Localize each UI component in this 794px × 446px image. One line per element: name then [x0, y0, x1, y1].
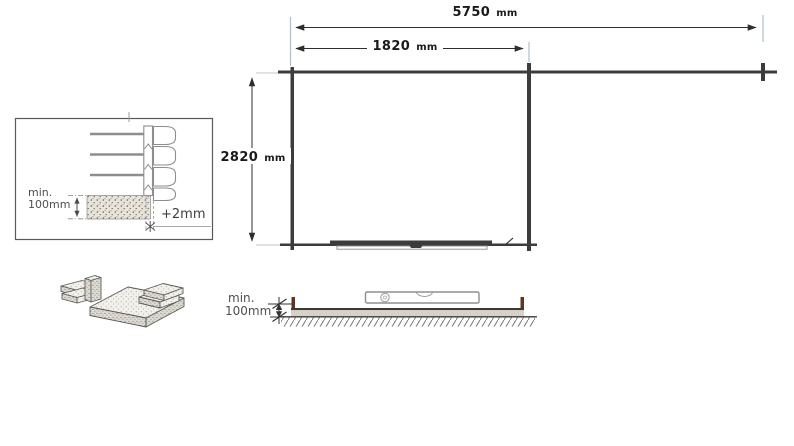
dimension-value: 5750 — [452, 5, 490, 20]
min-label-line2: 100mm — [225, 305, 271, 318]
min-label-line1: min. — [225, 292, 271, 305]
support-peg-left — [292, 297, 296, 309]
right-end-post — [761, 63, 765, 81]
diagram-linework — [0, 0, 794, 446]
dimension-unit: mm — [416, 42, 437, 53]
foundation-beam-section — [87, 196, 151, 220]
slab-top-edge — [291, 308, 524, 310]
inset-min-height-label: min. 100mm — [28, 187, 70, 212]
ground-hatch — [281, 318, 535, 327]
upright-block — [85, 276, 101, 303]
log-end-profiles — [154, 127, 176, 201]
foundation-materials-illustration — [61, 276, 184, 328]
plan-view — [252, 15, 777, 251]
installation-diagram: 5750mm 1820mm 2820mm min. 100mm +2mm min… — [0, 0, 794, 446]
support-peg-right — [521, 297, 525, 309]
dimension-unit: mm — [264, 153, 285, 164]
dimension-label-door-section: 1820mm — [346, 37, 464, 53]
side-view-min-height-label: min. 100mm — [225, 292, 271, 319]
middle-wall-post — [527, 63, 531, 251]
inset-expansion-gap-label: +2mm — [161, 207, 206, 222]
dimension-value: 1820 — [372, 39, 410, 54]
dimension-unit: mm — [496, 8, 517, 19]
level-round-vial — [381, 293, 389, 301]
spirit-level — [366, 292, 480, 303]
min-label-line2: 100mm — [28, 199, 70, 211]
dimension-label-depth: 2820mm — [209, 148, 297, 164]
dimension-label-total-width: 5750mm — [420, 3, 550, 19]
dimension-value: 2820 — [220, 150, 258, 165]
foundation-slab — [291, 310, 524, 316]
foundation-side-view — [268, 292, 537, 327]
